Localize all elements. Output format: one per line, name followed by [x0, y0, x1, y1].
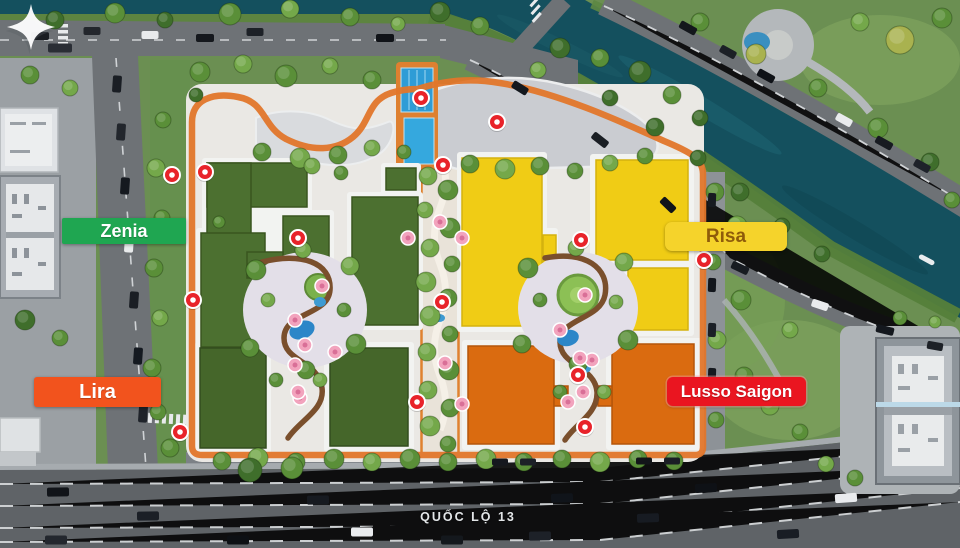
lusso-building-roof — [468, 346, 554, 444]
zone-label-lira: Lira — [34, 377, 161, 407]
lira-building-roof — [200, 348, 266, 448]
zone-label-risa: Risa — [665, 222, 787, 251]
zone-label-lira-text: Lira — [79, 382, 116, 402]
zone-label-zenia-text: Zenia — [100, 222, 147, 240]
masterplan-rendering — [0, 0, 960, 548]
masterplan-canvas: Zenia Risa Lira Lusso Saigon QUỐC LỘ 13 — [0, 0, 960, 548]
bottom-right-tower — [840, 326, 960, 494]
zone-label-zenia: Zenia — [62, 218, 186, 244]
highway-name: QUỐC LỘ 13 — [400, 509, 536, 525]
zone-label-lusso-text: Lusso Saigon — [681, 383, 792, 400]
zone-label-risa-text: Risa — [706, 227, 746, 246]
logo-watermark — [0, 0, 64, 58]
lira-building-roof — [330, 348, 408, 446]
zone-label-lusso: Lusso Saigon — [667, 377, 806, 406]
compass-star-icon — [7, 4, 55, 50]
zenia-building-roof — [386, 168, 416, 190]
